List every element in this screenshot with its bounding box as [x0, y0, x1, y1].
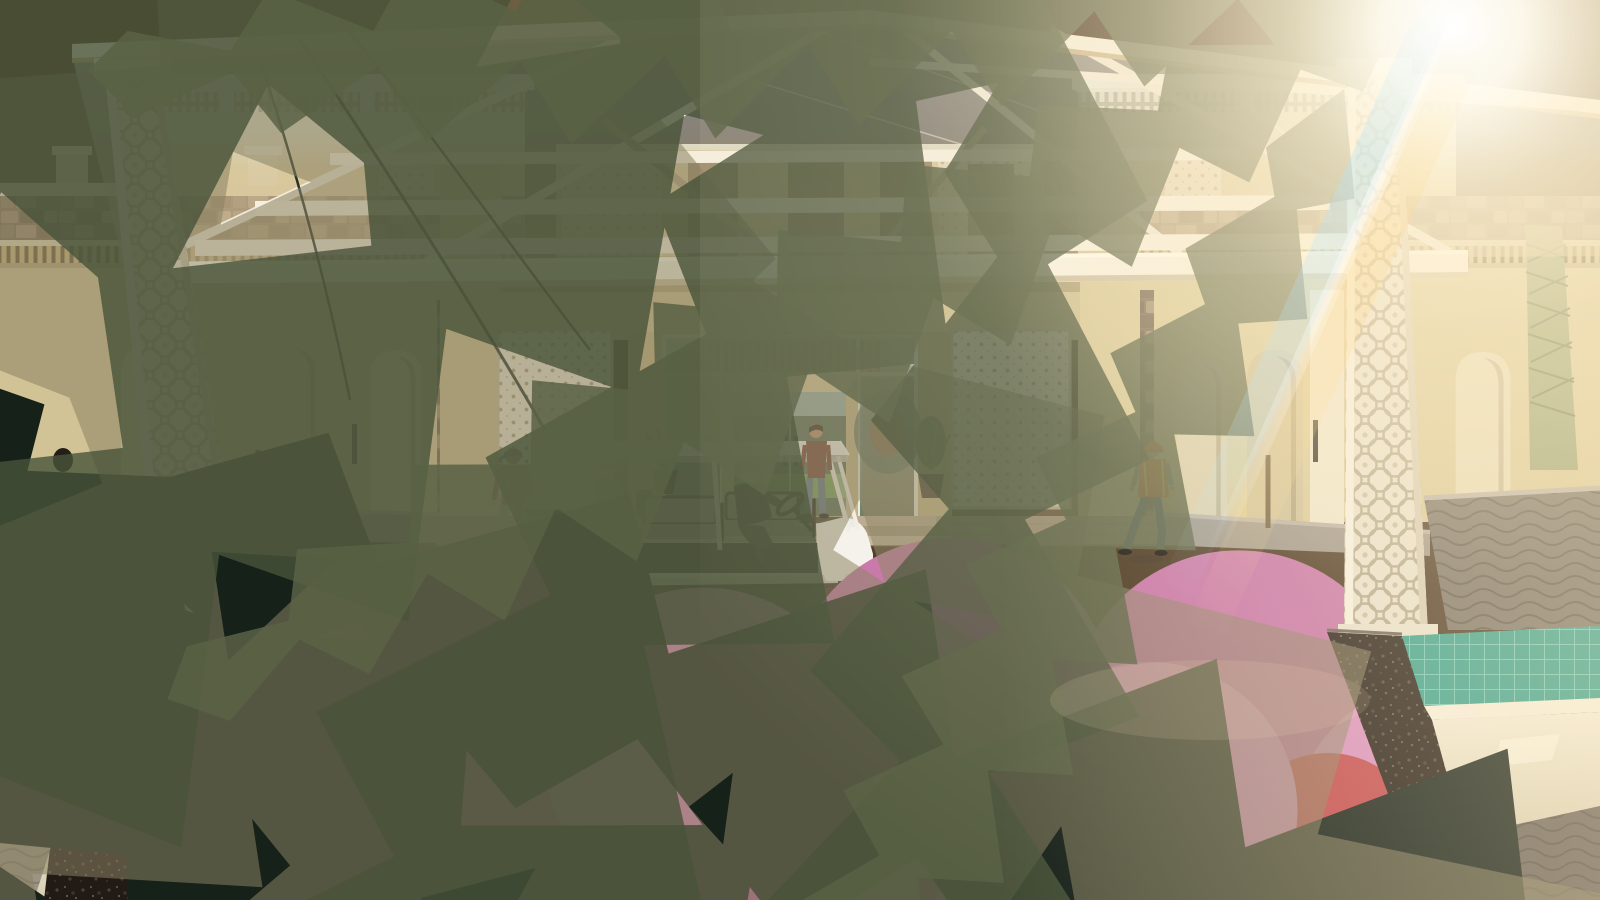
- render-viewport: Resort entrance courtyard — architectura…: [0, 0, 1600, 900]
- courtyard-render: Resort entrance courtyard — architectura…: [0, 0, 1600, 900]
- sun-glare: Bright sun in the upper right with white…: [700, 0, 1600, 900]
- pavement-glint: [1050, 660, 1370, 740]
